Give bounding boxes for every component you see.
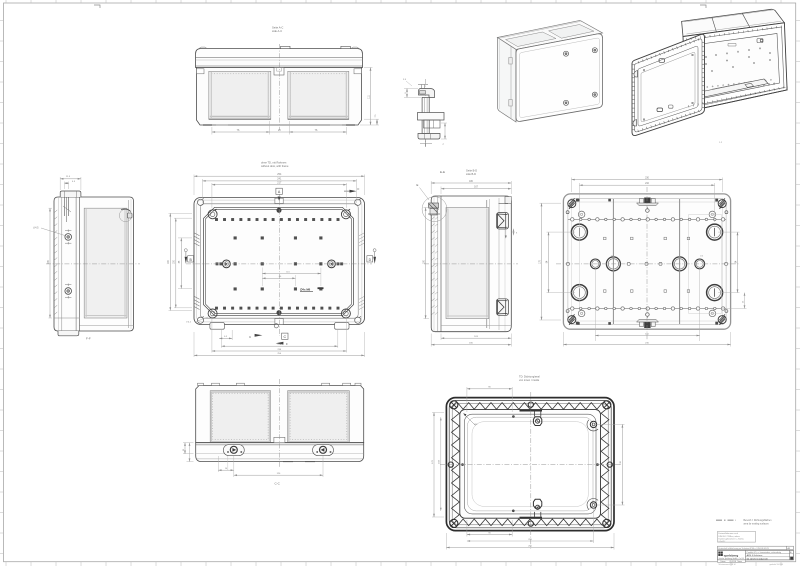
svg-text:180: 180	[423, 259, 425, 264]
svg-text:94: 94	[735, 260, 737, 263]
svg-text:Seite B-D: Seite B-D	[466, 169, 477, 173]
svg-text:180: 180	[48, 259, 50, 264]
svg-text:175: 175	[539, 259, 541, 264]
svg-text:11: 11	[183, 448, 185, 451]
svg-text:167: 167	[474, 187, 479, 189]
svg-text:90: 90	[488, 387, 491, 389]
svg-text:120: 120	[277, 473, 281, 475]
svg-text:C: C	[249, 335, 252, 339]
svg-text:Freimaßtoleranz nach: Freimaßtoleranz nach	[719, 532, 738, 535]
svg-text:Entwickelt in Anlehnung an Sch: Entwickelt in Anlehnung an Schutzart IP6…	[719, 547, 769, 550]
svg-text:250: 250	[528, 545, 532, 547]
svg-text:∅4x M6: ∅4x M6	[300, 288, 311, 292]
svg-text:A3: A3	[788, 547, 790, 550]
svg-text:4.5: 4.5	[72, 181, 76, 183]
svg-text:230: 230	[645, 342, 649, 344]
svg-text:side B-D: side B-D	[466, 172, 476, 176]
svg-text:∅4.5: ∅4.5	[33, 227, 39, 230]
svg-text:160: 160	[168, 259, 170, 264]
svg-text:150: 150	[174, 259, 176, 264]
svg-text:E: E	[417, 183, 419, 187]
svg-text:76: 76	[237, 129, 240, 132]
svg-text:163: 163	[474, 336, 478, 338]
svg-text:11.5: 11.5	[66, 176, 71, 178]
svg-text:85: 85	[179, 260, 181, 263]
svg-text:ohne TD, mit Rahmen: ohne TD, mit Rahmen	[261, 161, 287, 165]
svg-text:Name: Name	[738, 561, 743, 563]
svg-text:180: 180	[469, 181, 474, 183]
svg-text:217: 217	[277, 182, 282, 185]
svg-text:Schutzvermerk DIN 34: Schutzvermerk DIN 34	[719, 563, 736, 566]
svg-text:76: 76	[315, 129, 318, 132]
svg-text:1:2: 1:2	[719, 142, 723, 144]
svg-text:176: 176	[432, 459, 434, 463]
svg-text:von innen / inside: von innen / inside	[519, 378, 540, 382]
svg-text:C-C: C-C	[275, 482, 281, 486]
svg-text:230: 230	[645, 177, 650, 179]
svg-text:area for sealing surfaces: area for sealing surfaces	[744, 523, 770, 526]
svg-text:F: F	[358, 187, 360, 191]
svg-text:Seite A-C: Seite A-C	[272, 26, 283, 30]
svg-text:158: 158	[439, 459, 441, 463]
svg-text:Datum: Datum	[721, 560, 727, 563]
svg-text:TD: Dichtung/seal: TD: Dichtung/seal	[519, 375, 540, 379]
svg-text:226: 226	[528, 539, 532, 541]
svg-text:9: 9	[405, 92, 407, 94]
svg-text:254: 254	[277, 173, 282, 176]
svg-text:0.3x45°: 0.3x45°	[719, 541, 726, 543]
svg-text:94 10725 S 10bu3 03: 94 10725 S 10bu3 03	[747, 558, 769, 560]
svg-text:254: 254	[277, 353, 281, 355]
svg-text:7.5: 7.5	[375, 114, 377, 118]
svg-text:94: 94	[546, 260, 548, 263]
svg-text:5: 5	[443, 143, 445, 145]
svg-text:gedruckt 10.01.06: gedruckt 10.01.06	[770, 563, 784, 566]
svg-text:Produkt GTi, o. Inneneinbau, e: Produkt GTi, o. Inneneinbau, einbauferti…	[747, 551, 782, 554]
svg-text:14: 14	[225, 468, 228, 470]
svg-text:136: 136	[620, 460, 622, 464]
svg-text:241: 241	[277, 178, 282, 181]
svg-text:23: 23	[278, 129, 281, 132]
svg-text:E-E: E-E	[440, 170, 445, 174]
svg-text:236: 236	[277, 349, 281, 351]
svg-text:F-F: F-F	[86, 337, 91, 341]
svg-text:160: 160	[645, 333, 649, 335]
svg-text:spelsberg: spelsberg	[724, 553, 739, 557]
svg-text:180: 180	[469, 343, 473, 345]
svg-text:15: 15	[742, 300, 744, 303]
svg-text:6.5: 6.5	[224, 336, 228, 338]
svg-text:09.01.06: 09.01.06	[730, 561, 737, 563]
svg-text:111: 111	[367, 95, 370, 99]
svg-text:216: 216	[277, 344, 281, 346]
svg-text:8: 8	[516, 233, 518, 235]
svg-text:90: 90	[488, 532, 491, 534]
svg-text:∅4.2: ∅4.2	[186, 321, 192, 324]
svg-text:side A-C: side A-C	[272, 29, 282, 33]
svg-text:AKN 4 Gehäuse: AKN 4 Gehäuse	[747, 554, 764, 557]
svg-text:3.5: 3.5	[403, 79, 407, 81]
svg-text:without door, with frame: without door, with frame	[261, 164, 289, 168]
svg-text:210: 210	[645, 183, 650, 185]
svg-text:Bereich f. Dichtungsflächen: Bereich f. Dichtungsflächen	[744, 519, 773, 522]
svg-text:C: C	[283, 335, 286, 339]
svg-text:F: F	[286, 342, 288, 346]
